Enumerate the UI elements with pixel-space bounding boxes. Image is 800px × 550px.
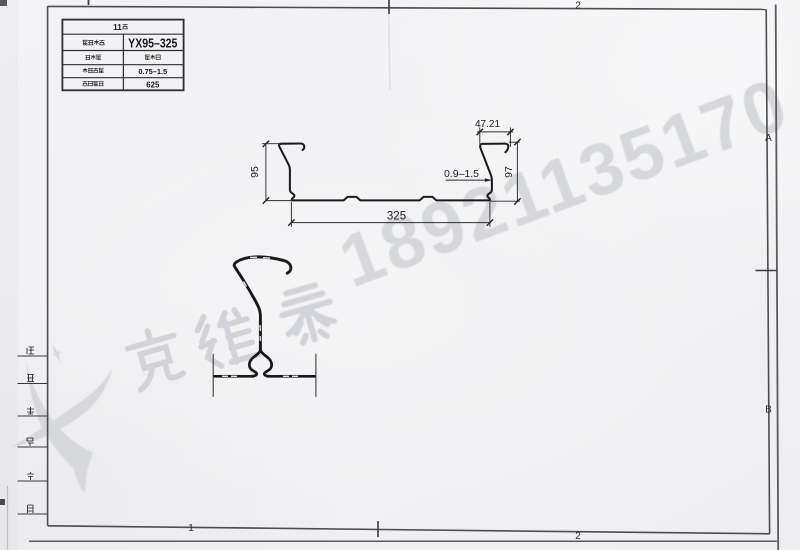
svg-text:0.75–1.5: 0.75–1.5: [138, 67, 167, 76]
svg-text:11: 11: [113, 23, 122, 32]
svg-text:YX95–325: YX95–325: [128, 35, 178, 50]
svg-text:18921135170: 18921135170: [329, 64, 799, 303]
svg-text:0.9–1.5: 0.9–1.5: [444, 168, 479, 180]
svg-text:A: A: [765, 133, 772, 144]
svg-text:325: 325: [387, 211, 406, 223]
svg-text:47.21: 47.21: [475, 119, 500, 130]
svg-text:B: B: [765, 405, 772, 416]
svg-text:1: 1: [188, 523, 194, 534]
svg-text:2: 2: [575, 1, 581, 12]
svg-text:95: 95: [249, 166, 261, 178]
svg-text:2: 2: [575, 531, 581, 542]
svg-text:625: 625: [146, 80, 160, 89]
svg-text:97: 97: [503, 166, 515, 178]
